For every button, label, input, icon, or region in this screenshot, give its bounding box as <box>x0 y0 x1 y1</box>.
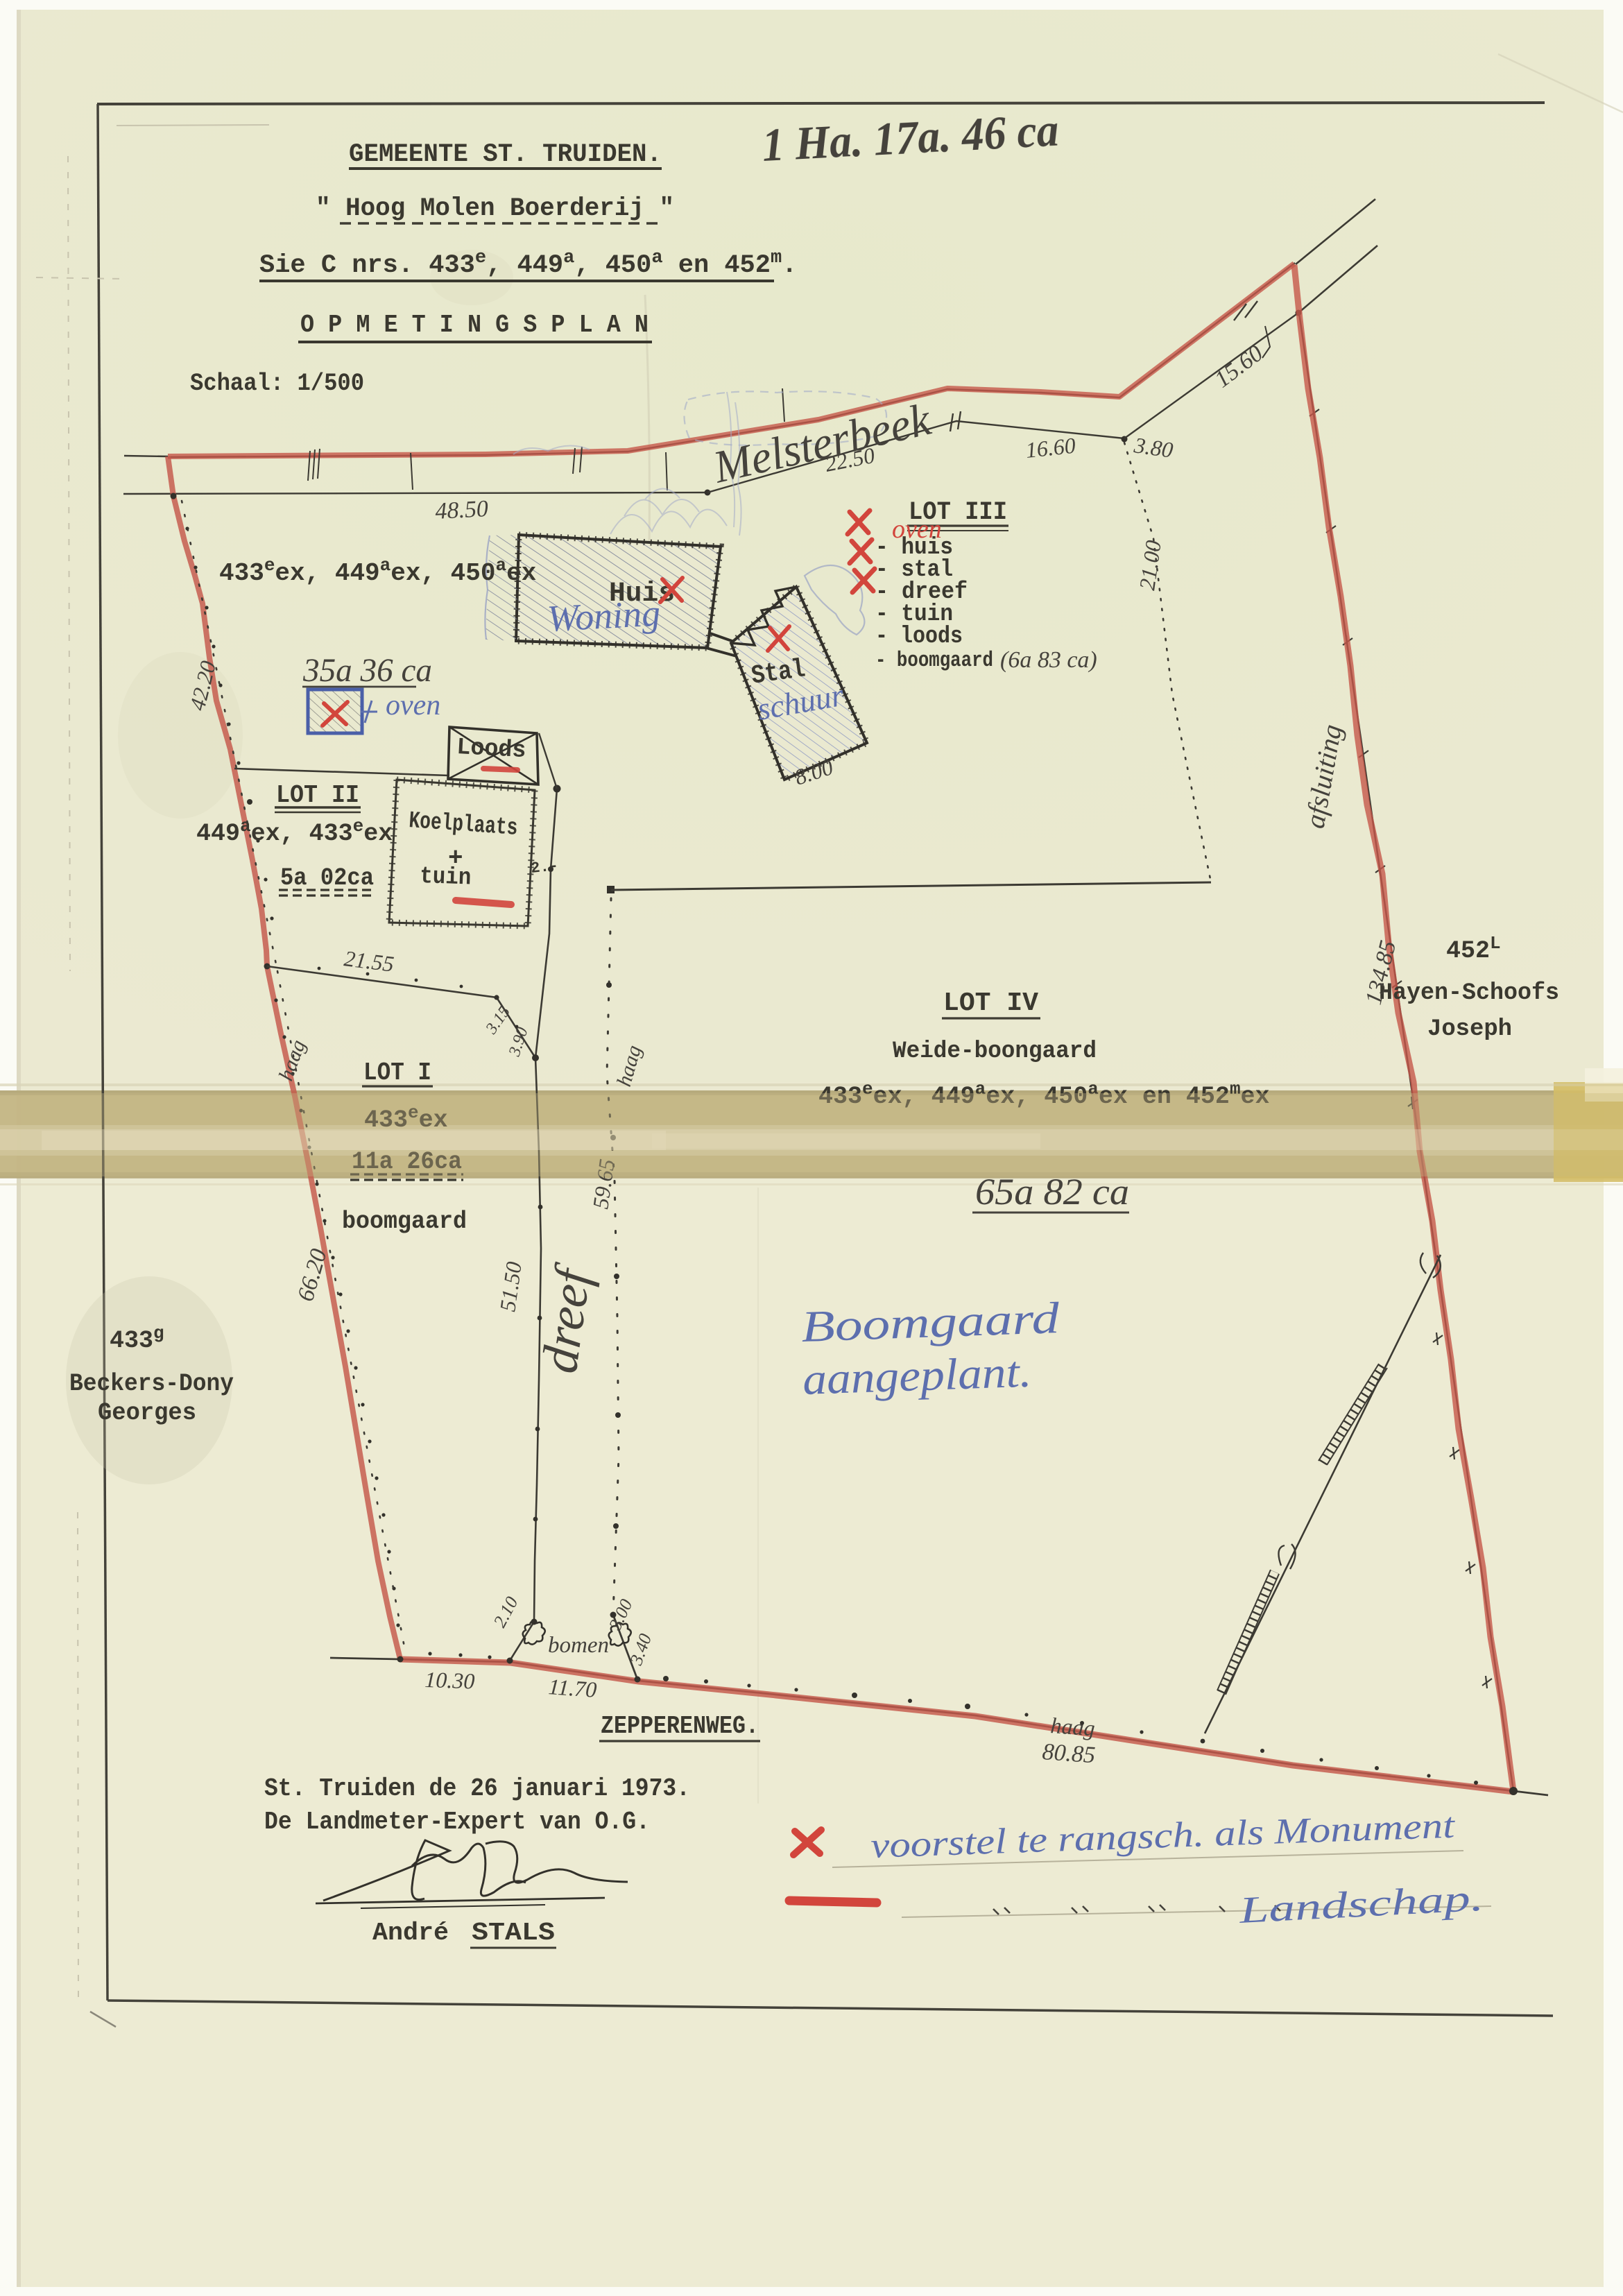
svg-text:Joseph: Joseph <box>1427 1016 1512 1043</box>
svg-text:Woning: Woning <box>546 592 661 640</box>
svg-text:Sie C nrs. 433e, 449a, 450a e: Sie C nrs. 433e, 449a, 450a en 452m. <box>259 248 797 280</box>
svg-text:Schaal: 1/500: Schaal: 1/500 <box>190 370 364 397</box>
svg-text:16.60: 16.60 <box>1024 433 1076 463</box>
svg-text:STALS: STALS <box>472 1919 555 1947</box>
svg-text:Weide-boongaard: Weide-boongaard <box>893 1038 1097 1065</box>
svg-text:aangeplant.: aangeplant. <box>802 1347 1032 1404</box>
svg-text:LOT II: LOT II <box>276 781 359 809</box>
svg-text:St. Truiden de 26 januari 1973: St. Truiden de 26 januari 1973. <box>264 1774 690 1803</box>
svg-text:bomen: bomen <box>548 1633 609 1658</box>
svg-text:oven: oven <box>386 689 440 721</box>
svg-text:De Landmeter-Expert van O.G.: De Landmeter-Expert van O.G. <box>264 1808 650 1836</box>
svg-text:Boomgaard: Boomgaard <box>800 1293 1060 1351</box>
svg-text:LOT IV: LOT IV <box>943 988 1038 1018</box>
svg-text:65a 82 ca: 65a 82 ca <box>975 1171 1129 1213</box>
svg-text:O P M E T I N G S P L A N: O P M E T I N G S P L A N <box>300 311 649 339</box>
svg-text:" Hoog Molen Boerderij ": " Hoog Molen Boerderij " <box>316 194 674 223</box>
svg-text:- loods: - loods <box>875 624 963 650</box>
svg-text:Loods: Loods <box>456 735 526 764</box>
svg-text:LOT I: LOT I <box>363 1059 431 1087</box>
svg-text:11.70: 11.70 <box>548 1674 598 1702</box>
svg-text:boomgaard: boomgaard <box>342 1208 467 1235</box>
svg-text:(6a 83 ca): (6a 83 ca) <box>1000 647 1097 673</box>
svg-text:35a 36 ca: 35a 36 ca <box>302 652 432 689</box>
svg-text:- boomgaard: - boomgaard <box>875 649 993 673</box>
svg-text:80.85: 80.85 <box>1041 1739 1096 1768</box>
svg-text:10.30: 10.30 <box>424 1667 475 1693</box>
svg-text:449aex, 433eex: 449aex, 433eex <box>196 816 393 848</box>
svg-text:tuin: tuin <box>420 864 472 892</box>
svg-text:GEMEENTE ST. TRUIDEN.: GEMEENTE ST. TRUIDEN. <box>349 140 662 169</box>
svg-text:ZEPPERENWEG.: ZEPPERENWEG. <box>601 1712 759 1740</box>
svg-text:Beckers-Dony: Beckers-Dony <box>69 1370 234 1398</box>
svg-text:2.-: 2.- <box>530 857 559 877</box>
svg-text:Hayen-Schoofs: Hayen-Schoofs <box>1379 980 1559 1006</box>
svg-text:48.50: 48.50 <box>434 496 488 524</box>
svg-text:André: André <box>372 1919 449 1947</box>
svg-text:haag: haag <box>1050 1713 1096 1740</box>
svg-text:Georges: Georges <box>98 1399 196 1427</box>
svg-text:5a 02ca: 5a 02ca <box>280 864 374 892</box>
